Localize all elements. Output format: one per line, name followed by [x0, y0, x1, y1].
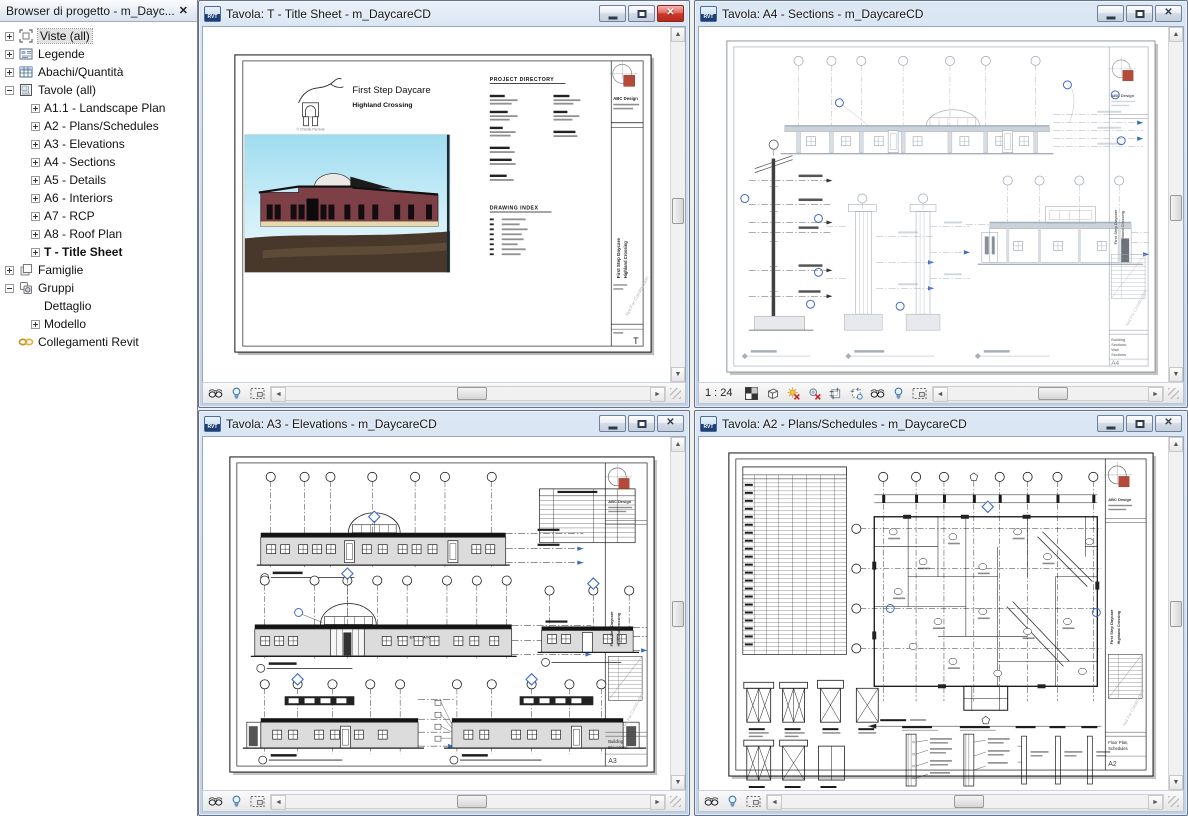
- temporary-hide-isolate-icon[interactable]: [207, 386, 224, 401]
- gruppi-icon: [18, 281, 34, 295]
- sheet-title-line: Sections: [1111, 352, 1126, 357]
- scroll-right-icon[interactable]: ►: [650, 795, 665, 810]
- tree-item-gruppi[interactable]: Gruppi: [0, 279, 197, 297]
- tree-expander-plus-icon[interactable]: [5, 68, 14, 77]
- reveal-hidden-elements-icon[interactable]: [228, 386, 245, 401]
- window-a2-plans: RVT Tavola: A2 - Plans/Schedules - m_Day…: [694, 410, 1188, 816]
- tree-spacer: [31, 302, 40, 311]
- tree-item-label: A5 - Details: [44, 173, 106, 187]
- titleblock-location: Highland Crossing: [617, 612, 621, 646]
- titlebar-a4[interactable]: RVT Tavola: A4 - Sections - m_DaycareCD …: [698, 1, 1184, 26]
- minimize-button[interactable]: [1097, 415, 1124, 432]
- scroll-left-icon[interactable]: ◄: [271, 387, 286, 402]
- tree-item-label: A1.1 - Landscape Plan: [44, 101, 165, 115]
- minimize-button[interactable]: [599, 415, 626, 432]
- scrollbar-thumb[interactable]: [954, 795, 984, 808]
- window-title: Tavola: A4 - Sections - m_DaycareCD: [722, 7, 1092, 21]
- tree-item-label: Abachi/Quantità: [38, 65, 123, 79]
- cover-subtitle: Highland Crossing: [352, 102, 412, 109]
- view-control-bar: ◄ ►: [698, 790, 1184, 812]
- tree-spacer: [5, 338, 14, 347]
- sheet-number: A3: [608, 758, 617, 765]
- scroll-up-icon[interactable]: ▲: [671, 437, 685, 452]
- vertical-scrollbar[interactable]: ▲ ▼: [1168, 437, 1183, 790]
- titleblock-location: Highland Crossing: [1121, 210, 1125, 244]
- scroll-up-icon[interactable]: ▲: [1169, 437, 1183, 452]
- sheet-title-line: Floor Plan,: [1108, 740, 1128, 745]
- sheet-title-line: Elevations: [608, 745, 627, 750]
- index-heading: DRAWING INDEX: [490, 205, 539, 211]
- minimize-button[interactable]: [599, 5, 626, 22]
- restore-button[interactable]: [628, 5, 655, 22]
- selection-toggle-icon[interactable]: [745, 794, 762, 809]
- titlebar-a3[interactable]: RVT Tavola: A3 - Elevations - m_DaycareC…: [202, 411, 686, 436]
- close-button[interactable]: ✕: [1155, 415, 1182, 432]
- tree-expander-plus-icon[interactable]: [31, 212, 40, 221]
- crop-region-visibility-icon[interactable]: [848, 386, 865, 401]
- temporary-hide-isolate-icon[interactable]: [207, 794, 224, 809]
- tree-item-label: Gruppi: [38, 281, 74, 295]
- logo-credit: © Christie Percival: [297, 128, 325, 132]
- tree-item-legende[interactable]: Legende: [0, 45, 197, 63]
- tree-item-label: Dettaglio: [44, 299, 91, 313]
- tree-item-label: A7 - RCP: [44, 209, 95, 223]
- tree-expander-plus-icon[interactable]: [5, 50, 14, 59]
- drawing-canvas-a2[interactable]: ABC Design First Step Daycare Highland C…: [699, 437, 1168, 790]
- tree-expander-plus-icon[interactable]: [31, 320, 40, 329]
- horizontal-scrollbar[interactable]: ◄ ►: [270, 386, 666, 401]
- reveal-hidden-elements-icon[interactable]: [890, 386, 907, 401]
- revit-file-icon: RVT: [700, 416, 717, 432]
- scrollbar-thumb[interactable]: [457, 387, 487, 400]
- horizontal-scrollbar[interactable]: ◄ ►: [270, 794, 666, 809]
- view-control-bar: ◄ ►: [202, 790, 686, 812]
- tree-item-viste-all[interactable]: Viste (all): [0, 27, 197, 45]
- tree-item-a2-plans-schedules[interactable]: A2 - Plans/Schedules: [0, 117, 197, 135]
- sheet-title-line: Building: [608, 739, 624, 744]
- tree-item-label: Tavole (all): [38, 83, 96, 97]
- sheet-drawing-a2: ABC Design First Step Daycare Highland C…: [699, 437, 1168, 790]
- titlebar-a2[interactable]: RVT Tavola: A2 - Plans/Schedules - m_Day…: [698, 411, 1184, 436]
- tree-item-label: Modello: [44, 317, 86, 331]
- tree-expander-minus-icon[interactable]: [5, 86, 14, 95]
- scroll-down-icon[interactable]: ▼: [1169, 367, 1183, 382]
- tree-expander-plus-icon[interactable]: [31, 158, 40, 167]
- reveal-hidden-elements-icon[interactable]: [228, 794, 245, 809]
- sun-path-off-icon[interactable]: [785, 386, 802, 401]
- tree-item-label: Collegamenti Revit: [38, 335, 139, 349]
- drawing-canvas-a3[interactable]: FIRST STEP DAYCARE: [203, 437, 670, 790]
- scrollbar-thumb[interactable]: [457, 795, 487, 808]
- firm-name: ABC Design: [1108, 497, 1131, 502]
- sheet-drawing-a3: FIRST STEP DAYCARE: [203, 437, 670, 790]
- legende-icon: [18, 47, 34, 61]
- project-browser-tree: Viste (all)LegendeAbachi/QuantitàTavole …: [0, 22, 197, 351]
- tree-item-collegamenti-revit[interactable]: Collegamenti Revit: [0, 333, 197, 351]
- window-title: Tavola: A2 - Plans/Schedules - m_Daycare…: [722, 417, 1092, 431]
- viste-icon: [18, 29, 34, 43]
- selection-toggle-icon[interactable]: [911, 386, 928, 401]
- sheet-number: T: [633, 336, 639, 346]
- scroll-left-icon[interactable]: ◄: [933, 387, 948, 402]
- window-a4-sections: RVT Tavola: A4 - Sections - m_DaycareCD …: [694, 0, 1188, 408]
- tree-expander-plus-icon[interactable]: [31, 248, 40, 257]
- mdi-area: RVT Tavola: T - Title Sheet - m_DaycareC…: [198, 0, 1188, 816]
- resize-grip[interactable]: [1168, 796, 1179, 807]
- project-browser-title: Browser di progetto - m_Dayc...: [6, 4, 176, 18]
- project-browser-header[interactable]: Browser di progetto - m_Dayc... ✕: [0, 0, 197, 22]
- temporary-hide-isolate-icon[interactable]: [869, 386, 886, 401]
- tree-expander-plus-icon[interactable]: [31, 104, 40, 113]
- window-title-sheet: RVT Tavola: T - Title Sheet - m_DaycareC…: [198, 0, 690, 408]
- cover-project-title: First Step Daycare: [352, 85, 430, 96]
- close-panel-icon[interactable]: ✕: [176, 4, 191, 17]
- scroll-left-icon[interactable]: ◄: [767, 795, 782, 810]
- window-title: Tavola: T - Title Sheet - m_DaycareCD: [226, 7, 594, 21]
- tree-expander-minus-icon[interactable]: [5, 284, 14, 293]
- close-button[interactable]: ✕: [1155, 5, 1182, 22]
- firm-name: ABC Design: [613, 96, 638, 101]
- resize-grip[interactable]: [670, 388, 681, 399]
- scroll-left-icon[interactable]: ◄: [271, 795, 286, 810]
- scroll-right-icon[interactable]: ►: [1148, 387, 1163, 402]
- scroll-down-icon[interactable]: ▼: [1169, 775, 1183, 790]
- view-scale[interactable]: 1 : 24: [703, 387, 739, 399]
- scroll-up-icon[interactable]: ▲: [671, 27, 685, 42]
- view-control-bar: 1 : 24 ◄ ►: [698, 382, 1184, 404]
- tree-item-label: A8 - Roof Plan: [44, 227, 122, 241]
- tree-item-label: A6 - Interiors: [44, 191, 113, 205]
- tree-expander-plus-icon[interactable]: [31, 140, 40, 149]
- scroll-right-icon[interactable]: ►: [1148, 795, 1163, 810]
- sheet-number: A2: [1108, 761, 1117, 768]
- window-title: Tavola: A3 - Elevations - m_DaycareCD: [226, 417, 594, 431]
- revit-file-icon: RVT: [204, 416, 221, 432]
- tree-item-a6-interiors[interactable]: A6 - Interiors: [0, 189, 197, 207]
- tree-item-a8-roof-plan[interactable]: A8 - Roof Plan: [0, 225, 197, 243]
- tree-item-dettaglio[interactable]: Dettaglio: [0, 297, 197, 315]
- revit-file-icon: RVT: [204, 6, 221, 22]
- tree-item-tavole-all[interactable]: Tavole (all): [0, 81, 197, 99]
- tree-item-abachi-quantit[interactable]: Abachi/Quantità: [0, 63, 197, 81]
- tree-item-label: A2 - Plans/Schedules: [44, 119, 159, 133]
- titleblock-location: Highland Crossing: [623, 241, 628, 279]
- project-browser-panel: Browser di progetto - m_Dayc... ✕ Viste …: [0, 0, 198, 816]
- tree-expander-plus-icon[interactable]: [31, 122, 40, 131]
- tree-item-a5-details[interactable]: A5 - Details: [0, 171, 197, 189]
- tree-item-a7-rcp[interactable]: A7 - RCP: [0, 207, 197, 225]
- restore-button[interactable]: [1126, 5, 1153, 22]
- window-a3-elevations: RVT Tavola: A3 - Elevations - m_DaycareC…: [198, 410, 690, 816]
- horizontal-scrollbar[interactable]: ◄ ►: [766, 794, 1164, 809]
- titleblock-project: First Step Daycare: [1113, 209, 1118, 245]
- tree-item-label: Viste (all): [38, 29, 92, 43]
- horizontal-scrollbar[interactable]: ◄ ►: [932, 386, 1164, 401]
- vertical-scrollbar[interactable]: ▲ ▼: [1168, 27, 1183, 382]
- firm-name: ABC Design: [1111, 93, 1134, 98]
- drawing-canvas-a4[interactable]: ABC Design First Step Daycare Highland C…: [699, 27, 1168, 382]
- titleblock-location: Highland Crossing: [1117, 610, 1121, 644]
- vertical-scrollbar[interactable]: ▲ ▼: [670, 27, 685, 382]
- revit-file-icon: RVT: [700, 6, 717, 22]
- tavole-icon: [18, 83, 34, 97]
- tree-expander-plus-icon[interactable]: [5, 32, 14, 41]
- sheet-drawing-a4: ABC Design First Step Daycare Highland C…: [699, 27, 1168, 382]
- tree-item-label: Legende: [38, 47, 85, 61]
- selection-toggle-icon[interactable]: [249, 794, 266, 809]
- tree-item-label: A3 - Elevations: [44, 137, 125, 151]
- titleblock-project: First Step Daycare: [616, 238, 621, 279]
- famiglie-icon: [18, 263, 34, 277]
- titlebar-title-sheet[interactable]: RVT Tavola: T - Title Sheet - m_DaycareC…: [202, 1, 686, 26]
- shadows-off-icon[interactable]: [806, 386, 823, 401]
- scroll-up-icon[interactable]: ▲: [1169, 27, 1183, 42]
- scrollbar-thumb[interactable]: [1170, 601, 1182, 627]
- restore-button[interactable]: [1126, 415, 1153, 432]
- tree-item-a1-1-landscape-plan[interactable]: A1.1 - Landscape Plan: [0, 99, 197, 117]
- sheet-number: A4: [1111, 360, 1119, 367]
- scrollbar-thumb[interactable]: [1038, 387, 1068, 400]
- directory-heading: PROJECT DIRECTORY: [490, 77, 555, 83]
- tree-expander-plus-icon[interactable]: [31, 194, 40, 203]
- crop-view-icon[interactable]: [827, 386, 844, 401]
- resize-grip[interactable]: [670, 796, 681, 807]
- scroll-down-icon[interactable]: ▼: [671, 775, 685, 790]
- link-icon: [18, 335, 34, 349]
- close-button[interactable]: ✕: [657, 415, 684, 432]
- tree-item-label: Famiglie: [38, 263, 83, 277]
- sheet-drawing-t: © Christie Percival First Step Daycare H…: [203, 27, 670, 382]
- tree-expander-plus-icon[interactable]: [31, 230, 40, 239]
- scrollbar-thumb[interactable]: [1170, 195, 1182, 221]
- firm-name: ABC Design: [608, 499, 631, 504]
- abachi-icon: [18, 65, 34, 79]
- view-control-bar: ◄ ►: [202, 382, 686, 404]
- tree-item-label: A4 - Sections: [44, 155, 115, 169]
- tree-item-famiglie[interactable]: Famiglie: [0, 261, 197, 279]
- rendered-perspective: [245, 135, 450, 273]
- scrollbar-thumb[interactable]: [672, 601, 684, 627]
- revit-workspace: Browser di progetto - m_Dayc... ✕ Viste …: [0, 0, 1188, 816]
- tree-item-t-title-sheet[interactable]: T - Title Sheet: [0, 243, 197, 261]
- tree-expander-plus-icon[interactable]: [31, 176, 40, 185]
- scrollbar-thumb[interactable]: [672, 198, 684, 224]
- sheet-title-line: Schedules: [1108, 746, 1127, 751]
- reveal-hidden-elements-icon[interactable]: [724, 794, 741, 809]
- tree-expander-plus-icon[interactable]: [5, 266, 14, 275]
- scroll-down-icon[interactable]: ▼: [671, 367, 685, 382]
- titleblock-project: First Step Daycare: [1109, 609, 1114, 645]
- tree-item-modello[interactable]: Modello: [0, 315, 197, 333]
- resize-grip[interactable]: [1168, 388, 1179, 399]
- tree-item-label: T - Title Sheet: [44, 245, 122, 259]
- vertical-scrollbar[interactable]: ▲ ▼: [670, 437, 685, 790]
- close-button[interactable]: ✕: [657, 5, 684, 22]
- temporary-hide-isolate-icon[interactable]: [703, 794, 720, 809]
- tree-item-a3-elevations[interactable]: A3 - Elevations: [0, 135, 197, 153]
- scroll-right-icon[interactable]: ►: [650, 387, 665, 402]
- visual-style-icon[interactable]: [764, 386, 781, 401]
- restore-button[interactable]: [628, 415, 655, 432]
- titleblock-project: First Step Daycare: [609, 611, 614, 647]
- selection-toggle-icon[interactable]: [249, 386, 266, 401]
- minimize-button[interactable]: [1097, 5, 1124, 22]
- detail-level-icon[interactable]: [743, 386, 760, 401]
- tree-item-a4-sections[interactable]: A4 - Sections: [0, 153, 197, 171]
- drawing-canvas-title-sheet[interactable]: © Christie Percival First Step Daycare H…: [203, 27, 670, 382]
